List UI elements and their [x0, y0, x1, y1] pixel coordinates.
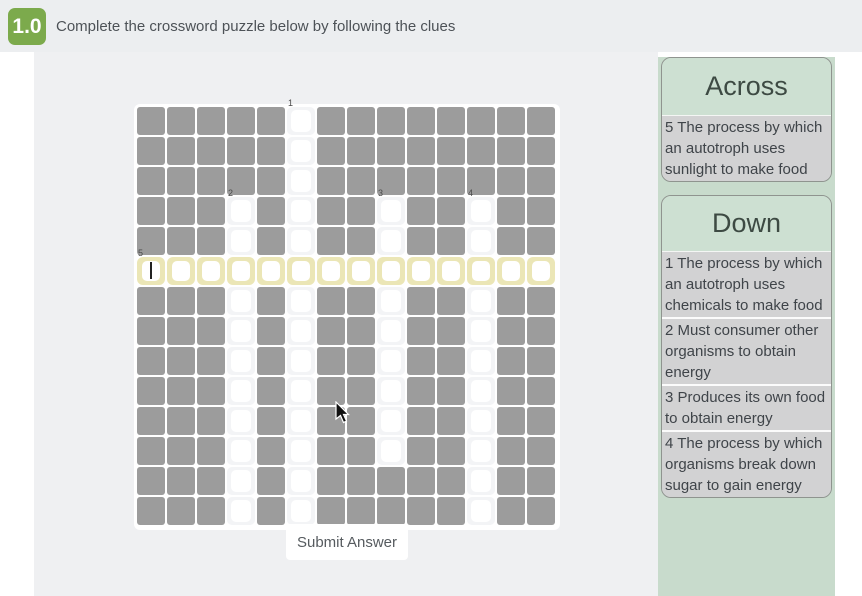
grid-block: [497, 227, 525, 255]
grid-block: [347, 137, 375, 165]
grid-block: [527, 347, 555, 375]
grid-cell-input-active[interactable]: [437, 257, 465, 285]
grid-block: [497, 497, 525, 525]
grid-block: [437, 467, 465, 495]
grid-block: [167, 167, 195, 195]
grid-cell-input-active[interactable]: [197, 257, 225, 285]
grid-block: [137, 167, 165, 195]
grid-cell-letter-box: [291, 380, 311, 402]
grid-cell-letter-box: [471, 440, 491, 462]
grid-cell-input[interactable]: [467, 437, 495, 465]
grid-block: [317, 107, 345, 135]
grid-block: [317, 437, 345, 465]
grid-block: [527, 167, 555, 195]
grid-block: [497, 347, 525, 375]
grid-block: [377, 497, 405, 525]
grid-block: [347, 497, 375, 525]
grid-cell-input[interactable]: [227, 197, 255, 225]
grid-block: [497, 197, 525, 225]
grid-block: [527, 317, 555, 345]
grid-block: [347, 167, 375, 195]
grid-cell-letter-box: [291, 500, 311, 522]
grid-cell-letter-box: [471, 410, 491, 432]
grid-cell-input[interactable]: [467, 407, 495, 435]
grid-block: [317, 347, 345, 375]
grid-block: [347, 107, 375, 135]
grid-block: [197, 227, 225, 255]
grid-block: [257, 467, 285, 495]
grid-cell-letter-box: [202, 261, 220, 281]
grid-cell-input[interactable]: [227, 377, 255, 405]
grid-cell-letter-box: [291, 140, 311, 162]
grid-block: [197, 347, 225, 375]
grid-block: [497, 137, 525, 165]
grid-block: [377, 137, 405, 165]
grid-cell-input-active[interactable]: [467, 257, 495, 285]
grid-cell-input[interactable]: [467, 287, 495, 315]
across-card: Across 5 The process by which an autotro…: [661, 57, 832, 182]
grid-block: [197, 317, 225, 345]
grid-cell-input[interactable]: [227, 227, 255, 255]
grid-block: [527, 227, 555, 255]
grid-cell-input[interactable]: [227, 437, 255, 465]
grid-block: [527, 497, 555, 525]
grid-cell-letter-box: [382, 261, 400, 281]
grid-cell-input[interactable]: [287, 137, 315, 165]
grid-block: [167, 377, 195, 405]
grid-cell-letter-box: [291, 410, 311, 432]
grid-cell-input[interactable]: [467, 347, 495, 375]
grid-block: [257, 437, 285, 465]
grid-cell-input[interactable]: [377, 317, 405, 345]
grid-cell-letter-box: [231, 440, 251, 462]
grid-cell-letter-box: [352, 261, 370, 281]
grid-cell-letter-box: [231, 230, 251, 252]
across-title: Across: [662, 58, 831, 116]
grid-cell-input-active[interactable]: [407, 257, 435, 285]
grid-block: [347, 437, 375, 465]
grid-cell-letter-box: [231, 290, 251, 312]
grid-cell-letter-box: [471, 230, 491, 252]
grid-block: [437, 197, 465, 225]
grid-block: [407, 197, 435, 225]
grid-block: [317, 317, 345, 345]
grid-cell-letter-box: [381, 350, 401, 372]
grid-cell-input-active[interactable]: [167, 257, 195, 285]
grid-block: [257, 347, 285, 375]
grid-cell-input[interactable]: [287, 317, 315, 345]
main-panel: 12345 Submit Answer: [34, 52, 658, 596]
grid-block: [437, 137, 465, 165]
clue-number: 2: [228, 188, 233, 198]
grid-cell-input[interactable]: [377, 287, 405, 315]
grid-block: [497, 287, 525, 315]
grid-block: [137, 197, 165, 225]
grid-block: [317, 137, 345, 165]
grid-cell-letter-box: [231, 350, 251, 372]
clue-item[interactable]: 1 The process by which an autotroph uses…: [662, 252, 831, 317]
grid-block: [407, 227, 435, 255]
grid-block: [197, 137, 225, 165]
grid-cell-letter-box: [291, 170, 311, 192]
grid-cell-letter-box: [471, 380, 491, 402]
grid-block: [407, 347, 435, 375]
grid-cell-letter-box: [532, 261, 550, 281]
grid-block: [257, 137, 285, 165]
grid-block: [197, 287, 225, 315]
grid-block: [437, 317, 465, 345]
grid-cell-input[interactable]: [287, 407, 315, 435]
grid-cell-input[interactable]: [287, 167, 315, 195]
grid-cell-letter-box: [231, 380, 251, 402]
grid-block: [257, 287, 285, 315]
grid-block: [437, 347, 465, 375]
grid-block: [497, 167, 525, 195]
clue-number: 1: [288, 98, 293, 108]
grid-cell-letter-box: [471, 470, 491, 492]
grid-block: [137, 317, 165, 345]
grid-block: [497, 317, 525, 345]
grid-cell-letter-box: [381, 290, 401, 312]
grid-cell-letter-box: [472, 261, 490, 281]
grid-block: [407, 287, 435, 315]
grid-cell-input[interactable]: [467, 317, 495, 345]
grid-block: [257, 497, 285, 525]
grid-cell-letter-box: [231, 470, 251, 492]
clue-item[interactable]: 5 The process by which an autotroph uses…: [662, 116, 831, 181]
grid-cell-letter-box: [231, 200, 251, 222]
grid-block: [197, 437, 225, 465]
grid-cell-input-active[interactable]: [377, 257, 405, 285]
grid-cell-input[interactable]: [467, 377, 495, 405]
grid-cell-letter-box: [502, 261, 520, 281]
grid-block: [137, 137, 165, 165]
grid-block: [167, 137, 195, 165]
grid-block: [257, 197, 285, 225]
grid-block: [257, 167, 285, 195]
grid-block: [197, 107, 225, 135]
grid-block: [407, 407, 435, 435]
instruction-text: Complete the crossword puzzle below by f…: [56, 0, 455, 52]
grid-block: [257, 407, 285, 435]
grid-block: [197, 377, 225, 405]
grid-block: [527, 137, 555, 165]
grid-cell-letter-box: [231, 410, 251, 432]
clue-item[interactable]: 2 Must consumer other organisms to obtai…: [662, 317, 831, 384]
grid-block: [317, 497, 345, 525]
grid-block: [407, 107, 435, 135]
grid-block: [197, 407, 225, 435]
grid-cell-letter-box: [381, 230, 401, 252]
grid-cell-letter-box: [291, 350, 311, 372]
grid-cell-letter-box: [381, 320, 401, 342]
grid-block: [197, 497, 225, 525]
grid-cell-input[interactable]: [467, 467, 495, 495]
grid-cell-input[interactable]: [227, 287, 255, 315]
grid-block: [167, 437, 195, 465]
grid-cell-input-active[interactable]: [527, 257, 555, 285]
grid-block: [257, 107, 285, 135]
grid-block: [137, 287, 165, 315]
grid-block: [167, 107, 195, 135]
grid-block: [527, 377, 555, 405]
grid-block: [437, 227, 465, 255]
grid-block: [347, 347, 375, 375]
grid-cell-input[interactable]: [227, 407, 255, 435]
grid-block: [317, 227, 345, 255]
grid-cell-input[interactable]: [287, 197, 315, 225]
grid-cell-letter-box: [231, 500, 251, 522]
grid-block: [527, 407, 555, 435]
grid-block: [227, 107, 255, 135]
grid-block: [197, 197, 225, 225]
clue-number: 5: [138, 248, 143, 258]
grid-cell-input[interactable]: [377, 377, 405, 405]
grid-block: [347, 467, 375, 495]
clue-item[interactable]: 4 The process by which organisms break d…: [662, 430, 831, 497]
grid-cell-letter-box: [291, 470, 311, 492]
grid-block: [497, 437, 525, 465]
grid-block: [407, 167, 435, 195]
grid-cell-input[interactable]: [287, 347, 315, 375]
grid-block: [167, 287, 195, 315]
grid-cell-input[interactable]: [287, 497, 315, 525]
grid-cell-letter-box: [412, 261, 430, 281]
down-clue-list: 1 The process by which an autotroph uses…: [662, 252, 831, 497]
across-clue-list: 5 The process by which an autotroph uses…: [662, 116, 831, 181]
grid-cell-input-active[interactable]: [257, 257, 285, 285]
grid-block: [347, 287, 375, 315]
grid-block: [347, 227, 375, 255]
grid-block: [437, 107, 465, 135]
grid-cell-letter-box: [292, 261, 310, 281]
down-card: Down 1 The process by which an autotroph…: [661, 195, 832, 498]
grid-cell-letter-box: [232, 261, 250, 281]
down-title: Down: [662, 196, 831, 252]
grid-cell-letter-box: [471, 290, 491, 312]
grid-cell-letter-box: [291, 290, 311, 312]
grid-block: [137, 407, 165, 435]
grid-block: [437, 167, 465, 195]
crossword-board: 12345: [134, 104, 560, 530]
clues-panel: Across 5 The process by which an autotro…: [658, 57, 835, 596]
grid-cell-input[interactable]: [287, 437, 315, 465]
grid-cell-letter-box: [471, 200, 491, 222]
grid-cell-input[interactable]: [377, 347, 405, 375]
grid-cell-input[interactable]: [227, 497, 255, 525]
grid-cell-letter-box: [381, 410, 401, 432]
submit-answer-button[interactable]: Submit Answer: [286, 524, 408, 560]
grid-block: [407, 137, 435, 165]
grid-block: [377, 467, 405, 495]
grid-block: [497, 467, 525, 495]
grid-block: [467, 137, 495, 165]
grid-block: [167, 317, 195, 345]
question-number-badge: 1.0: [8, 8, 46, 45]
grid-block: [167, 347, 195, 375]
grid-block: [197, 467, 225, 495]
grid-cell-input[interactable]: [377, 227, 405, 255]
grid-block: [137, 347, 165, 375]
grid-block: [497, 407, 525, 435]
grid-cell-input[interactable]: [377, 407, 405, 435]
grid-cell-letter-box: [322, 261, 340, 281]
grid-cell-letter-box: [291, 110, 311, 132]
grid-block: [347, 197, 375, 225]
clue-number: 4: [468, 188, 473, 198]
grid-block: [437, 497, 465, 525]
grid-cell-input-active[interactable]: [287, 257, 315, 285]
grid-cell-letter-box: [172, 261, 190, 281]
grid-block: [137, 497, 165, 525]
grid-cell-input-active[interactable]: [227, 257, 255, 285]
grid-block: [167, 467, 195, 495]
grid-cell-input[interactable]: [377, 197, 405, 225]
grid-cell-letter-box: [262, 261, 280, 281]
grid-block: [437, 437, 465, 465]
header-bar: 1.0 Complete the crossword puzzle below …: [0, 0, 862, 52]
grid-cell-letter-box: [442, 261, 460, 281]
grid-block: [527, 437, 555, 465]
grid-block: [497, 377, 525, 405]
grid-cell-letter-box: [231, 320, 251, 342]
grid-block: [347, 407, 375, 435]
grid-block: [257, 377, 285, 405]
grid-block: [167, 197, 195, 225]
grid-cell-letter-box: [471, 500, 491, 522]
grid-block: [197, 167, 225, 195]
grid-block: [167, 497, 195, 525]
grid-block: [347, 317, 375, 345]
grid-block: [257, 317, 285, 345]
grid-block: [407, 497, 435, 525]
grid-block: [257, 227, 285, 255]
grid-cell-letter-box: [471, 350, 491, 372]
grid-block: [137, 377, 165, 405]
grid-block: [137, 107, 165, 135]
grid-block: [437, 377, 465, 405]
grid-cell-input-active[interactable]: [317, 257, 345, 285]
grid-block: [437, 407, 465, 435]
grid-block: [437, 287, 465, 315]
grid-cell-letter-box: [381, 380, 401, 402]
grid-cell-letter-box: [471, 320, 491, 342]
grid-cell-input-active[interactable]: [497, 257, 525, 285]
grid-cell-letter-box: [291, 230, 311, 252]
grid-block: [407, 467, 435, 495]
grid-block: [167, 407, 195, 435]
grid-block: [407, 377, 435, 405]
clue-item[interactable]: 3 Produces its own food to obtain energy: [662, 384, 831, 430]
grid-block: [527, 107, 555, 135]
grid-cell-input[interactable]: [377, 437, 405, 465]
grid-block: [317, 287, 345, 315]
crossword-grid: 12345: [137, 107, 557, 527]
mouse-cursor: [335, 401, 351, 425]
grid-block: [167, 227, 195, 255]
grid-block: [407, 437, 435, 465]
grid-cell-input[interactable]: [227, 347, 255, 375]
grid-cell-input[interactable]: [227, 317, 255, 345]
grid-block: [317, 467, 345, 495]
clue-number: 3: [378, 188, 383, 198]
grid-cell-letter-box: [381, 200, 401, 222]
grid-block: [527, 197, 555, 225]
grid-cell-input[interactable]: [287, 287, 315, 315]
grid-cell-input-active[interactable]: [347, 257, 375, 285]
grid-block: [137, 467, 165, 495]
grid-block: [527, 287, 555, 315]
grid-cell-input[interactable]: [467, 227, 495, 255]
grid-cell-input[interactable]: [287, 107, 315, 135]
grid-cell-input[interactable]: [467, 497, 495, 525]
grid-block: [227, 137, 255, 165]
grid-block: [497, 107, 525, 135]
grid-block: [407, 317, 435, 345]
grid-block: [317, 167, 345, 195]
grid-cell-input[interactable]: [287, 227, 315, 255]
grid-block: [317, 197, 345, 225]
grid-block: [137, 437, 165, 465]
grid-cell-input[interactable]: [227, 467, 255, 495]
grid-cell-input[interactable]: [287, 377, 315, 405]
grid-block: [527, 467, 555, 495]
grid-cell-input[interactable]: [467, 197, 495, 225]
grid-cell-letter-box: [291, 200, 311, 222]
grid-block: [347, 377, 375, 405]
grid-cell-letter-box: [291, 320, 311, 342]
grid-cell-input[interactable]: [287, 467, 315, 495]
text-caret: [150, 262, 152, 279]
grid-cell-letter-box: [291, 440, 311, 462]
grid-cell-letter-box: [381, 440, 401, 462]
grid-block: [377, 107, 405, 135]
grid-block: [467, 107, 495, 135]
